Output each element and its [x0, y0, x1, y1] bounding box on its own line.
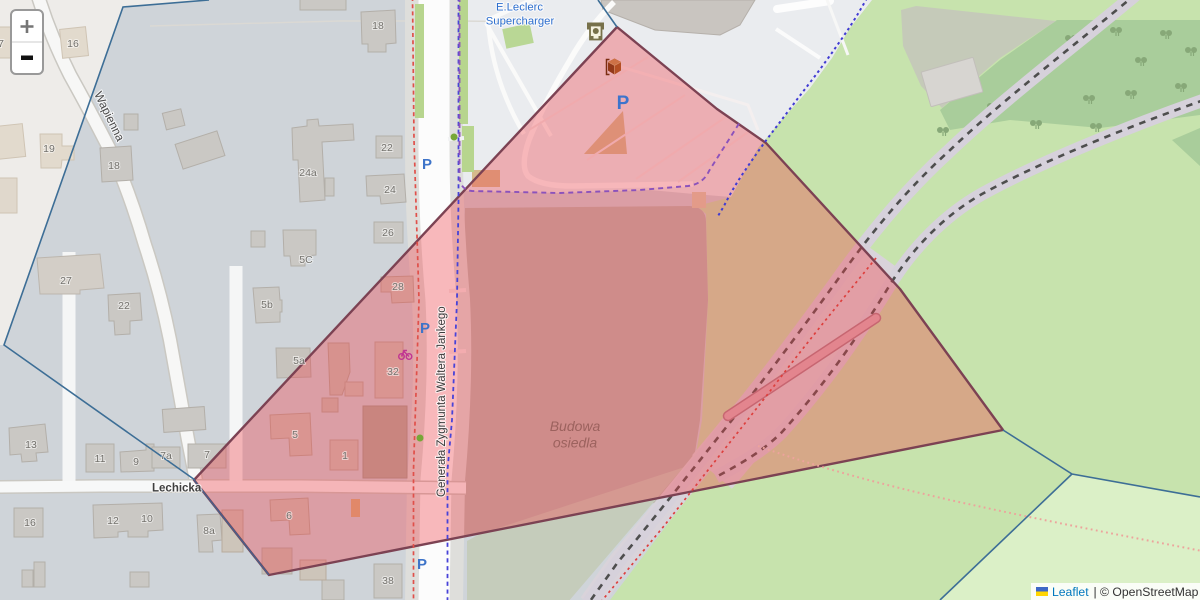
svg-text:10: 10	[141, 513, 153, 525]
svg-text:28: 28	[392, 281, 404, 293]
svg-text:16: 16	[24, 517, 36, 529]
svg-text:26: 26	[382, 227, 394, 239]
svg-text:16: 16	[67, 38, 79, 50]
svg-text:E.Leclerc: E.Leclerc	[496, 2, 543, 14]
svg-text:5: 5	[292, 429, 298, 441]
svg-text:Generała Zygmunta Waltera Jank: Generała Zygmunta Waltera Jankego	[436, 306, 448, 497]
svg-text:6: 6	[286, 510, 292, 522]
svg-text:P: P	[417, 556, 427, 573]
svg-text:38: 38	[382, 575, 394, 587]
svg-text:Leaflet: Leaflet	[1052, 585, 1089, 599]
svg-text:7a: 7a	[160, 450, 172, 462]
svg-text:32: 32	[387, 366, 399, 378]
svg-text:11: 11	[95, 453, 106, 465]
svg-text:19: 19	[43, 143, 55, 155]
svg-text:5C: 5C	[299, 254, 313, 266]
svg-text:5b: 5b	[261, 299, 273, 311]
svg-text:P: P	[420, 320, 430, 337]
svg-text:Budowa: Budowa	[550, 418, 601, 434]
svg-text:18: 18	[108, 160, 120, 172]
svg-text:7: 7	[0, 38, 4, 50]
svg-text:| © OpenStreetMap: | © OpenStreetMap	[1094, 585, 1199, 599]
svg-text:5a: 5a	[293, 355, 305, 367]
svg-text:9: 9	[133, 456, 139, 468]
svg-text:22: 22	[381, 142, 393, 154]
svg-text:8a: 8a	[203, 525, 215, 537]
svg-text:7: 7	[204, 449, 210, 461]
svg-text:P: P	[422, 156, 432, 173]
svg-text:1: 1	[342, 450, 348, 462]
svg-text:13: 13	[25, 439, 37, 451]
svg-text:24a: 24a	[299, 167, 317, 179]
svg-text:27: 27	[60, 275, 72, 287]
svg-text:24: 24	[384, 184, 396, 196]
svg-text:P: P	[617, 93, 630, 114]
svg-text:Lechicka: Lechicka	[152, 483, 202, 495]
svg-text:12: 12	[107, 515, 119, 527]
svg-text:18: 18	[372, 20, 384, 32]
svg-text:Supercharger: Supercharger	[486, 16, 555, 28]
svg-text:osiedla: osiedla	[553, 435, 598, 451]
svg-text:22: 22	[118, 300, 130, 312]
